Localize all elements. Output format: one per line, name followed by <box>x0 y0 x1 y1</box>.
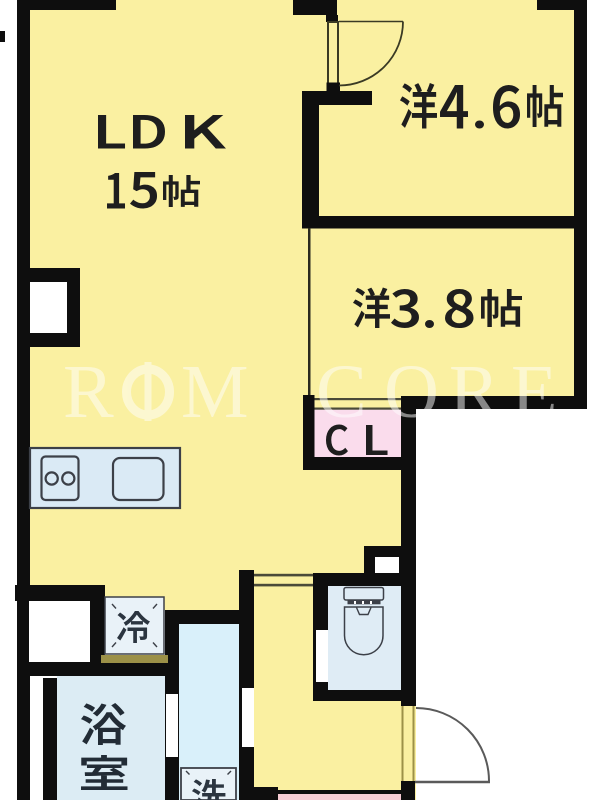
svg-text:E: E <box>511 350 557 434</box>
svg-text:C: C <box>316 350 367 434</box>
svg-text:R: R <box>449 350 500 434</box>
svg-text:O: O <box>384 350 439 434</box>
svg-text:R: R <box>63 350 114 434</box>
svg-text:M: M <box>181 350 249 434</box>
